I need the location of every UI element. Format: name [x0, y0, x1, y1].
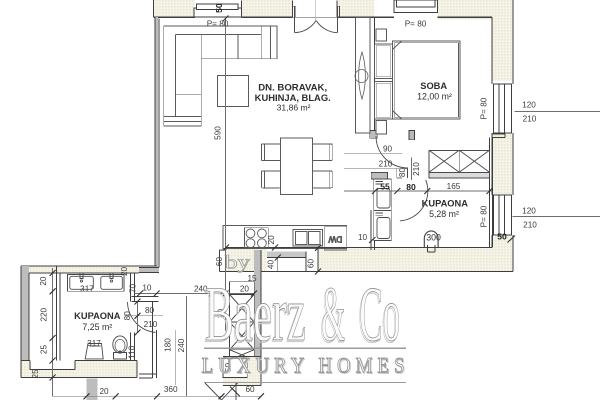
svg-text:10: 10	[358, 233, 368, 242]
svg-text:165: 165	[447, 182, 461, 191]
svg-text:KUHINJA, BLAG.: KUHINJA, BLAG.	[255, 92, 331, 103]
svg-text:210: 210	[379, 160, 393, 169]
svg-text:10: 10	[142, 284, 152, 293]
svg-text:80: 80	[123, 311, 132, 321]
svg-text:20: 20	[267, 235, 276, 245]
svg-text:KUPAONA: KUPAONA	[74, 311, 121, 321]
svg-text:50: 50	[214, 3, 224, 13]
svg-text:20: 20	[120, 267, 129, 277]
svg-text:80: 80	[406, 182, 416, 192]
svg-text:KUPAONA: KUPAONA	[422, 199, 469, 209]
svg-text:90: 90	[383, 145, 393, 154]
svg-text:DW: DW	[328, 235, 342, 244]
svg-text:20: 20	[99, 387, 109, 396]
svg-text:LUXURY HOMES: LUXURY HOMES	[202, 353, 410, 378]
svg-text:&: &	[321, 270, 345, 357]
svg-text:P= 80: P= 80	[207, 20, 229, 29]
svg-text:55: 55	[380, 181, 390, 191]
svg-text:5,28 m²: 5,28 m²	[429, 209, 459, 219]
svg-text:25: 25	[39, 345, 48, 355]
svg-text:Co: Co	[359, 270, 400, 357]
svg-text:300: 300	[426, 233, 441, 243]
svg-text:40: 40	[267, 260, 276, 270]
svg-text:50: 50	[497, 232, 507, 242]
svg-text:210: 210	[523, 115, 537, 124]
svg-text:220: 220	[39, 307, 48, 321]
svg-text:590: 590	[214, 126, 223, 140]
svg-text:12,00 m²: 12,00 m²	[417, 92, 452, 102]
svg-text:360: 360	[164, 385, 178, 394]
svg-text:7,25 m²: 7,25 m²	[82, 322, 112, 332]
svg-text:317: 317	[80, 285, 94, 294]
svg-text:Baerz: Baerz	[205, 270, 306, 357]
svg-text:180: 180	[163, 338, 172, 352]
svg-text:210: 210	[523, 221, 537, 230]
svg-text:210: 210	[144, 320, 158, 329]
svg-text:60: 60	[215, 257, 224, 267]
svg-text:240: 240	[177, 338, 186, 352]
svg-text:60: 60	[245, 385, 255, 394]
svg-text:317: 317	[87, 339, 101, 348]
svg-text:P= 80: P= 80	[480, 205, 489, 227]
svg-text:110: 110	[127, 345, 136, 358]
svg-text:31,86 m²: 31,86 m²	[277, 103, 311, 113]
svg-text:P= 80: P= 80	[480, 97, 489, 119]
svg-text:60: 60	[307, 259, 316, 269]
svg-text:120: 120	[522, 207, 536, 216]
svg-text:80: 80	[145, 306, 155, 315]
svg-text:80: 80	[398, 168, 407, 178]
svg-text:210: 210	[412, 162, 421, 176]
svg-text:120: 120	[522, 101, 536, 110]
svg-text:P= 80: P= 80	[405, 20, 427, 29]
svg-text:SOBA: SOBA	[420, 81, 447, 91]
svg-text:20: 20	[39, 276, 48, 286]
svg-text:70: 70	[128, 284, 137, 294]
svg-text:25: 25	[31, 369, 40, 379]
